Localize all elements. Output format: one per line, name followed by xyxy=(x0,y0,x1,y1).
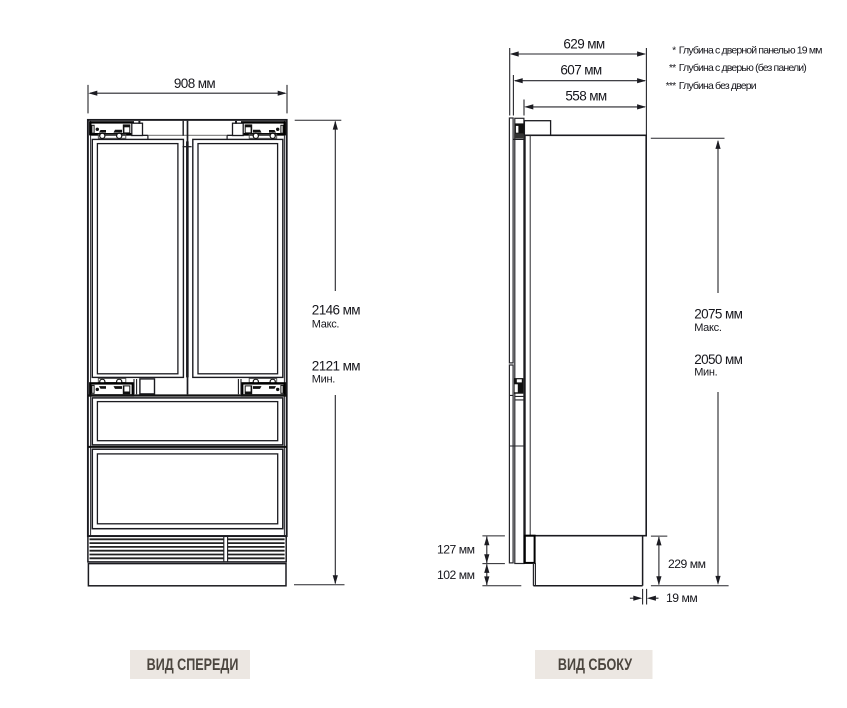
svg-text:19 мм: 19 мм xyxy=(666,591,697,605)
svg-text:**: ** xyxy=(669,62,676,74)
svg-text:Макс.: Макс. xyxy=(694,322,722,334)
svg-text:229 мм: 229 мм xyxy=(668,557,706,571)
svg-text:Мин.: Мин. xyxy=(312,373,335,385)
svg-text:2075 мм: 2075 мм xyxy=(694,307,742,322)
svg-text:2121 мм: 2121 мм xyxy=(312,358,360,373)
svg-text:908 мм: 908 мм xyxy=(174,76,216,91)
svg-text:ВИД СБОКУ: ВИД СБОКУ xyxy=(558,655,633,674)
svg-text:Глубина с дверью (без панели): Глубина с дверью (без панели) xyxy=(679,62,806,74)
svg-text:127 мм: 127 мм xyxy=(437,542,475,556)
svg-text:Макс.: Макс. xyxy=(312,319,340,331)
svg-text:102 мм: 102 мм xyxy=(437,568,475,582)
svg-text:Глубина с дверной панелью 19 м: Глубина с дверной панелью 19 мм xyxy=(679,45,822,57)
svg-text:Мин.: Мин. xyxy=(694,367,717,379)
svg-text:607 мм: 607 мм xyxy=(560,63,602,78)
svg-text:629 мм: 629 мм xyxy=(563,37,605,52)
svg-text:2146 мм: 2146 мм xyxy=(312,303,360,318)
svg-text:2050 мм: 2050 мм xyxy=(694,352,742,367)
svg-text:Глубина без двери: Глубина без двери xyxy=(679,80,757,92)
svg-text:558 мм: 558 мм xyxy=(565,89,607,104)
svg-text:***: *** xyxy=(666,80,676,92)
svg-text:ВИД СПЕРЕДИ: ВИД СПЕРЕДИ xyxy=(147,655,239,674)
